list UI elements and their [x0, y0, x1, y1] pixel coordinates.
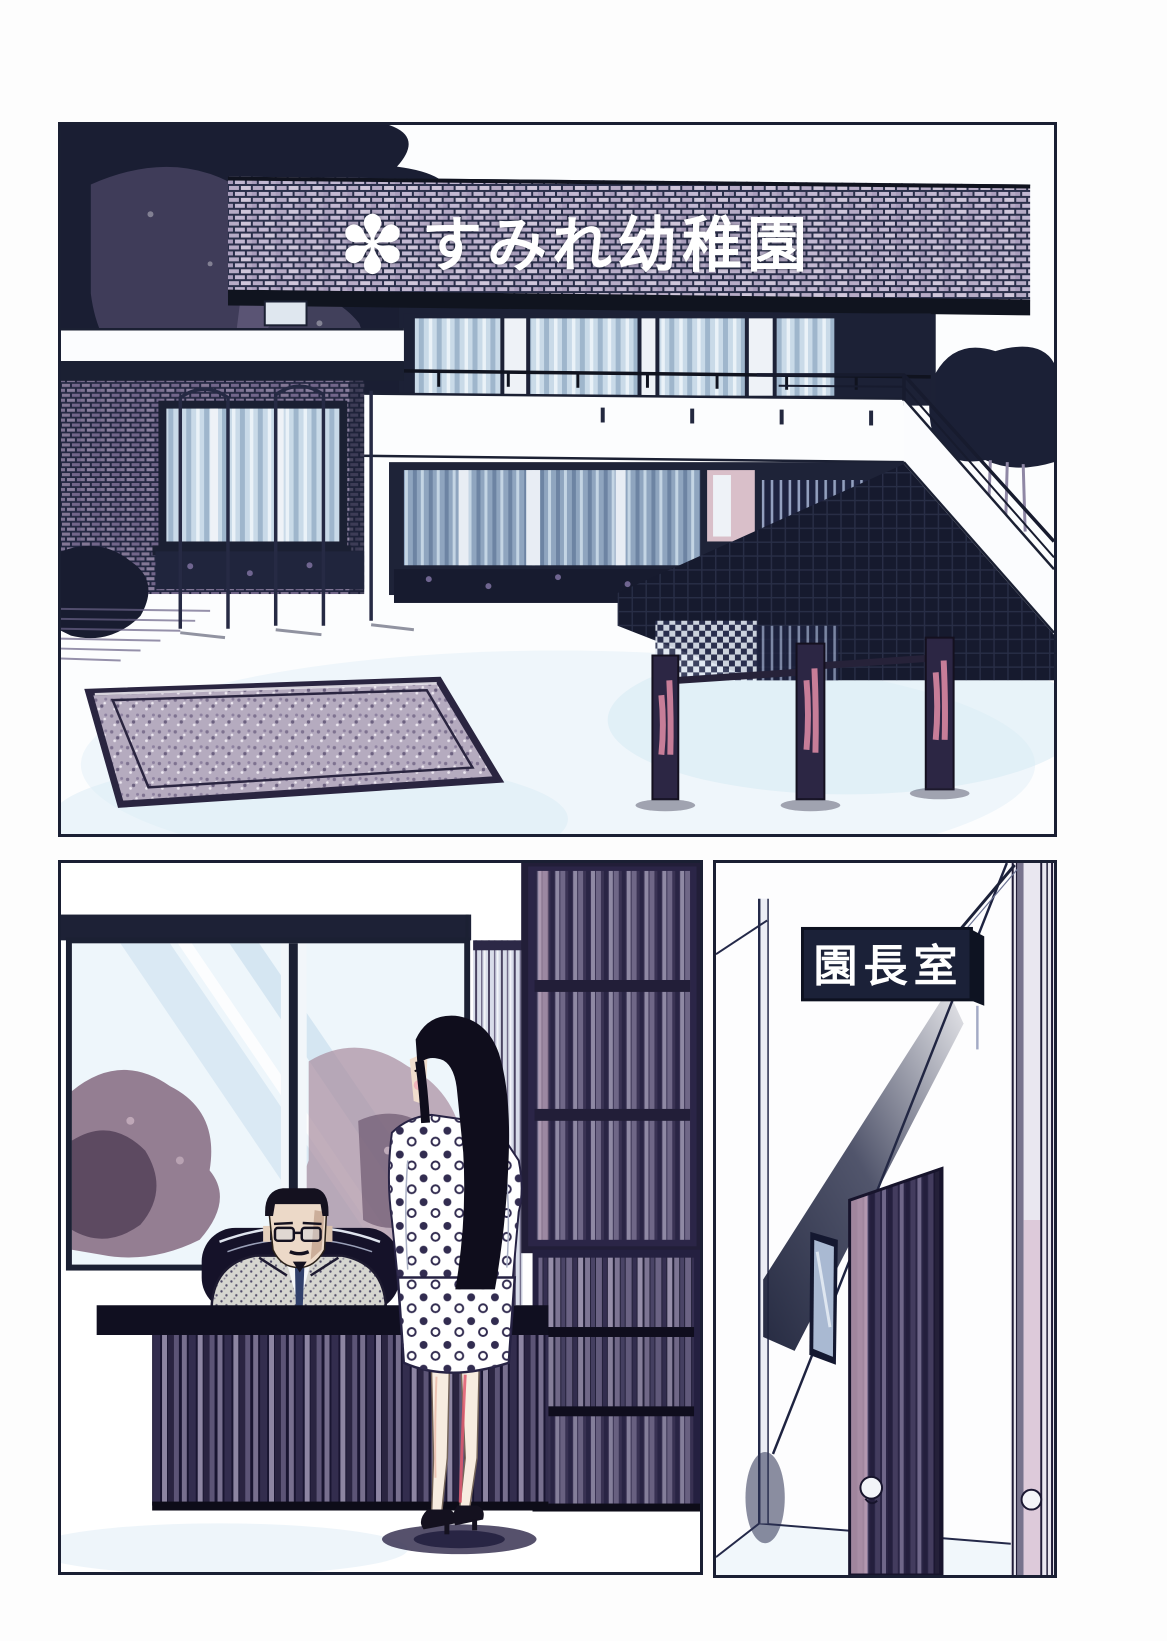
glasses	[275, 1228, 294, 1241]
office-door	[850, 1168, 942, 1575]
manga-page: ✽ すみれ幼稚園	[0, 0, 1167, 1641]
annex-building	[61, 328, 404, 638]
sandbox	[89, 680, 499, 804]
sign-bracket	[970, 928, 985, 1005]
doorknob	[860, 1477, 882, 1499]
right-door-frame	[1011, 863, 1054, 1575]
office-scene	[61, 863, 700, 1572]
ceiling-beam	[61, 915, 471, 941]
picture-frame	[809, 1232, 837, 1365]
panel-principal-office	[58, 860, 703, 1575]
mustache	[290, 1252, 309, 1254]
exterior-scene	[61, 125, 1054, 834]
bookshelf	[533, 1250, 700, 1512]
glazed-door	[525, 863, 700, 1250]
panel-kindergarten-exterior: ✽ すみれ幼稚園	[58, 122, 1057, 837]
sign-plate	[802, 928, 971, 999]
right-doorknob	[1022, 1490, 1042, 1510]
panel-hallway: 園長室	[713, 860, 1057, 1578]
sign-band	[228, 177, 1030, 302]
hallway-scene	[716, 863, 1054, 1575]
